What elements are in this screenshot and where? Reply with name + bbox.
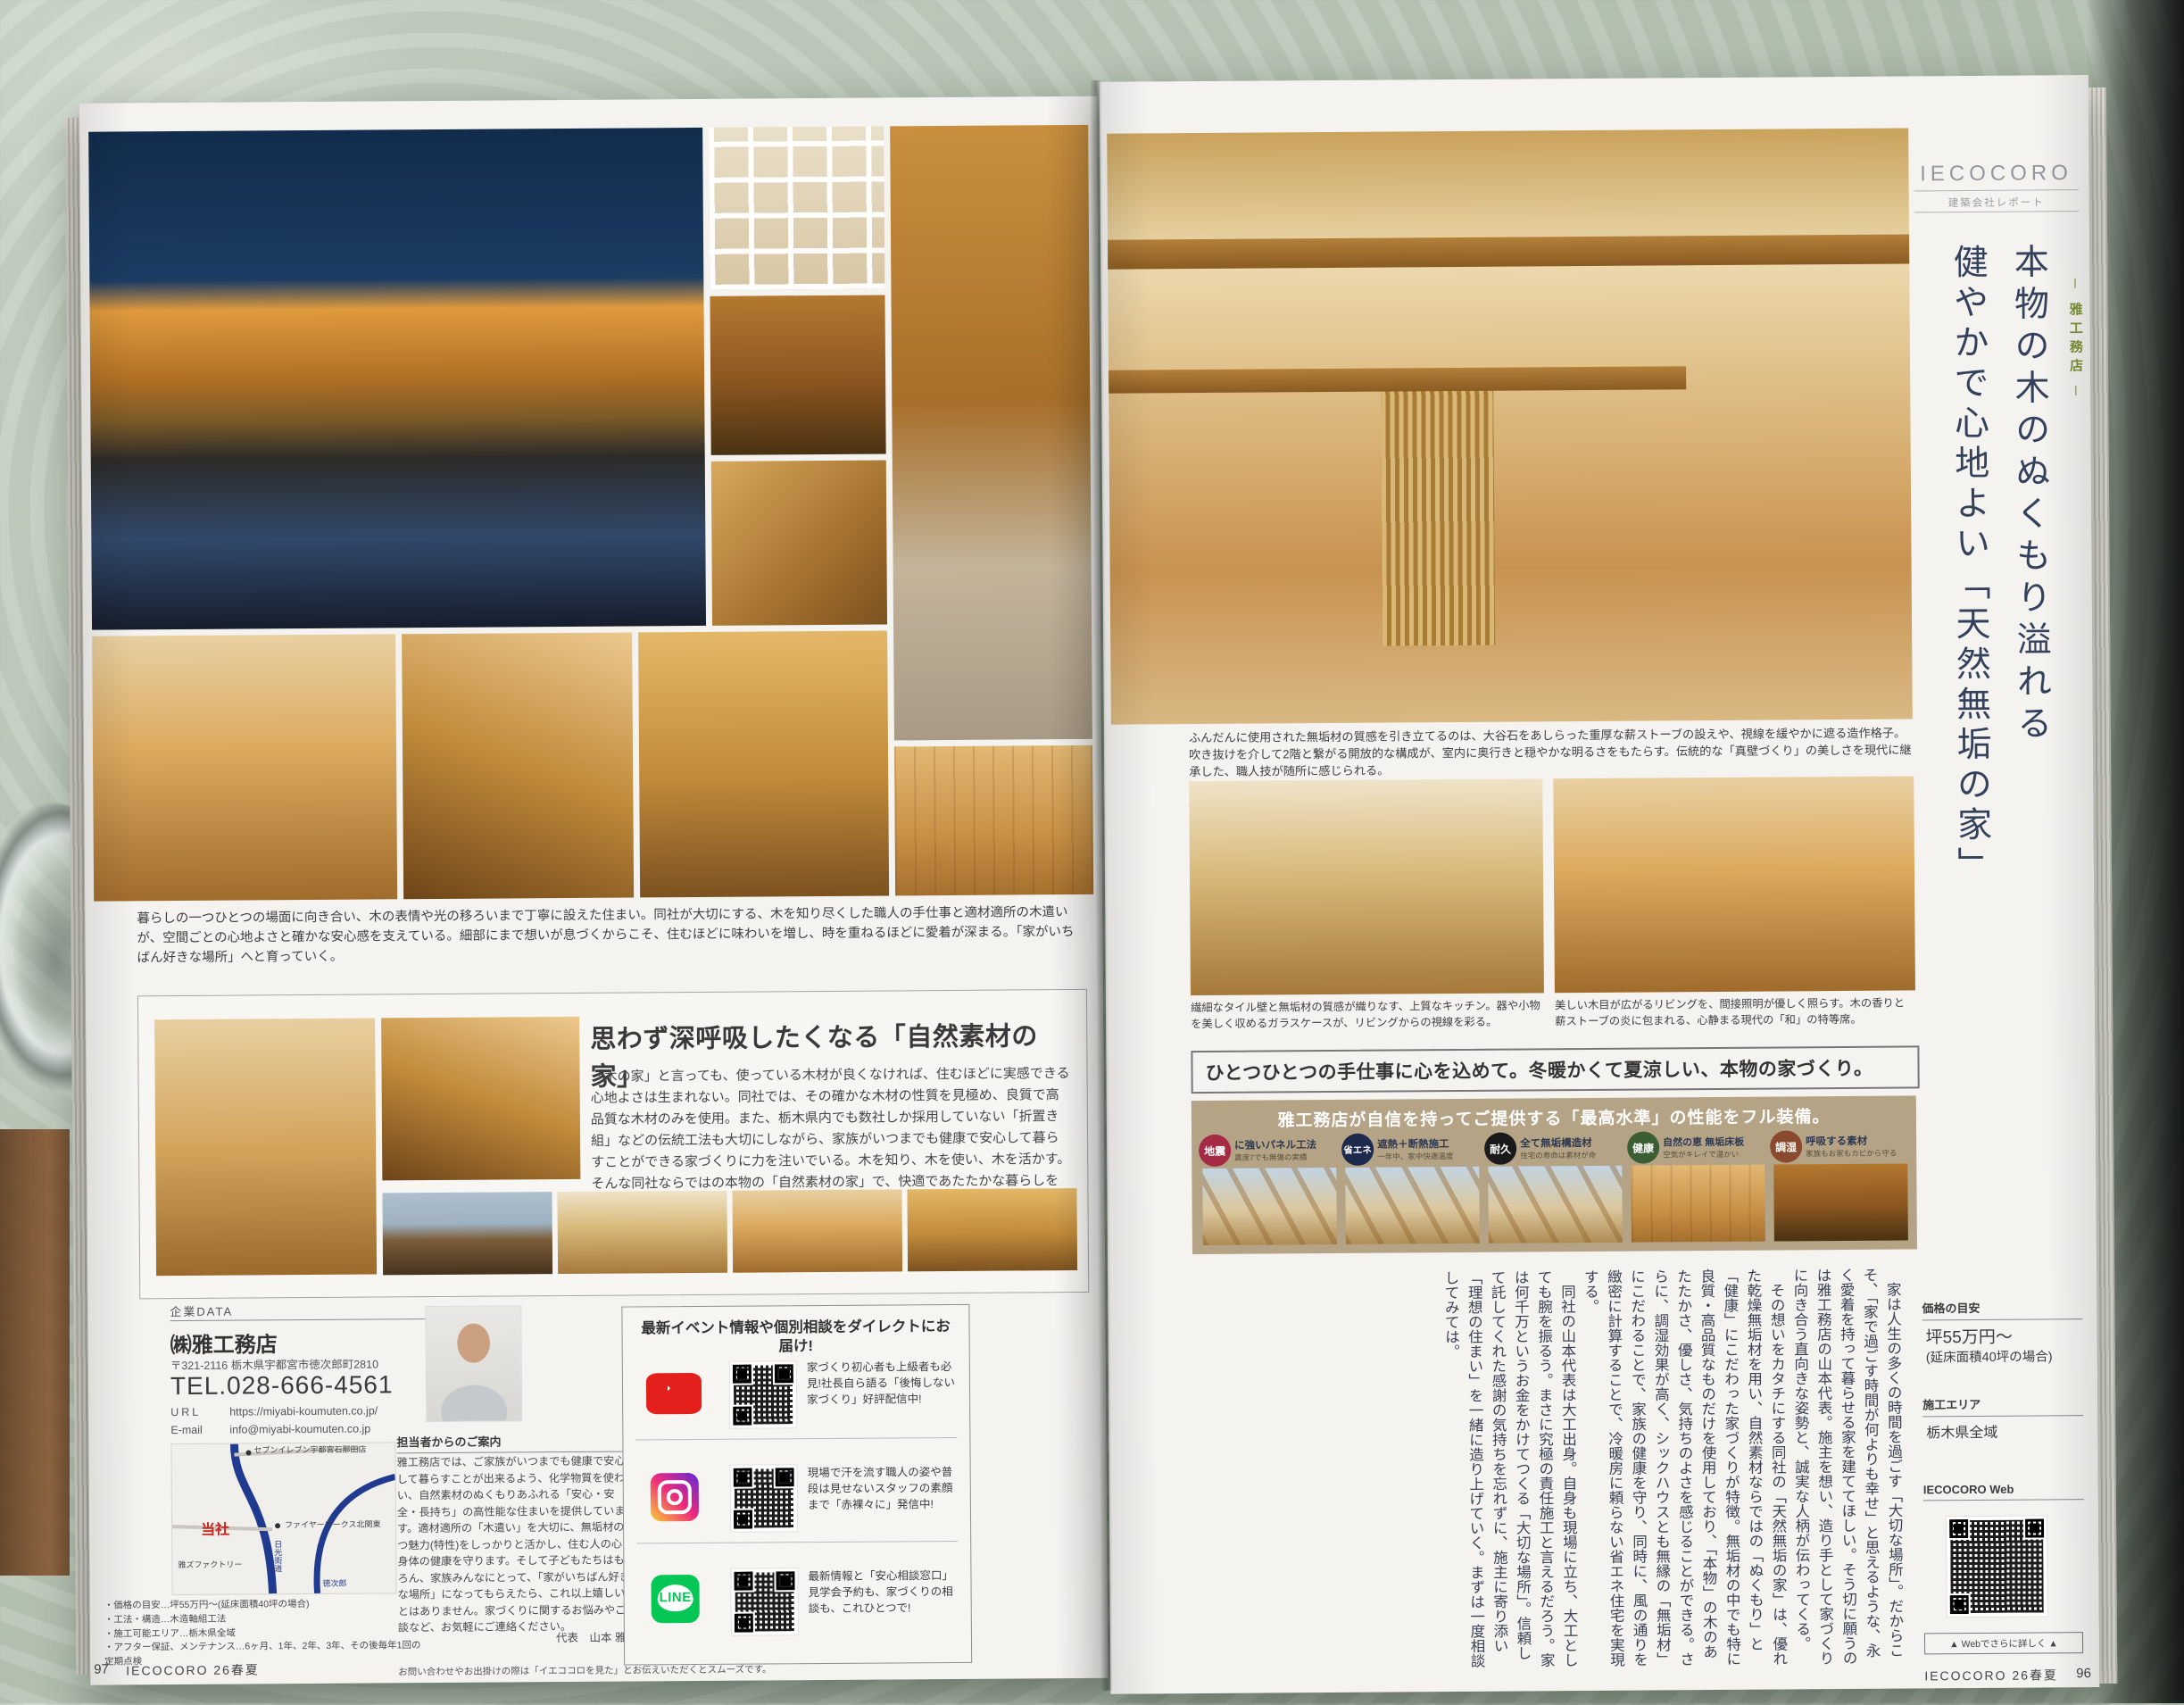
- page-number-right: 96: [2076, 1666, 2091, 1681]
- photo-grid-caption: 暮らしの一つひとつの場面に向き合い、木の表情や光の移ろいまで丁寧に設えた住まい。…: [137, 902, 1084, 969]
- sns-instagram-text: 現場で汗を流す職人の姿や普段は見せないスタッフの素顔まで「赤裸々に」発信中!: [808, 1464, 958, 1514]
- photo-interior-plants: [154, 1018, 377, 1276]
- spec-sub: 家族もお家もカビから守る: [1806, 1147, 1911, 1159]
- area-value: 栃木県全域: [1926, 1420, 1997, 1443]
- photo-breathing-material: [1773, 1163, 1908, 1241]
- photo-stairwell: [381, 1017, 580, 1181]
- badge-humidity: 調湿: [1770, 1130, 1802, 1162]
- photo-main-beam2: [1109, 366, 1686, 394]
- spec-title: 遮熱＋断熱施工: [1377, 1136, 1482, 1152]
- line-qr-code: [731, 1568, 798, 1635]
- map-label-road: 日光街道: [272, 1540, 284, 1572]
- price-value-2: (延床面積40坪の場合): [1926, 1346, 2053, 1366]
- article-body: 家は人生の多くの時間を過ごす「大切な場所」。だからこそ、「家で過ごす時間が何より…: [1143, 1268, 1906, 1676]
- spec-sub: 一年中、家中快適温度: [1377, 1151, 1482, 1162]
- photo-hallway: [710, 295, 885, 454]
- badge-health: 健康: [1627, 1131, 1659, 1163]
- magazine-name-left: IECOCORO 26春夏: [126, 1660, 260, 1679]
- spec-sub: 震度7でも無傷の実績: [1234, 1152, 1340, 1163]
- youtube-qr-code: [730, 1361, 797, 1428]
- price-value-1: 坪55万円〜: [1926, 1324, 2013, 1349]
- page-left: 暮らしの一つひとつの場面に向き合い、木の表情や光の移ろいまで丁寧に設えた住まい。…: [79, 96, 1108, 1685]
- spec-tile-earthquake: 地震 に強いパネル工法 震度7でも無傷の実績: [1202, 1137, 1337, 1247]
- map-label-fireworks: ファイヤーワークス北関東: [285, 1518, 392, 1530]
- map-label-self: 当社: [201, 1518, 229, 1539]
- photo-engawa: [907, 1188, 1077, 1271]
- photo-exterior-dusk: [88, 128, 706, 630]
- photo-stair-detail: [894, 745, 1093, 896]
- photo-corridor-lamp: [638, 630, 889, 897]
- brand-rule-bottom: [1914, 211, 2079, 212]
- line-logo-text: LINE: [658, 1584, 693, 1612]
- web-qr-code: [1947, 1516, 2047, 1617]
- staff-portrait: [425, 1305, 522, 1422]
- footer-note: お問い合わせやお出掛けの際は「イエココロを見た」とお伝えいただくとスムーズです。: [398, 1661, 969, 1678]
- photo-old-house: [382, 1192, 552, 1275]
- photo-insulation-work: [1345, 1167, 1480, 1244]
- company-tag: ─ 雅工務店 ─: [2065, 243, 2090, 1189]
- main-photo-caption: ふんだんに使用された無垢材の質感を引き立てるのは、大谷石をあしらった重厚な薪スト…: [1189, 724, 1914, 780]
- photo-kitchen: [1189, 778, 1544, 995]
- photo-stair-beams: [402, 632, 634, 899]
- map-label-factory: 雅ズファクトリー: [178, 1558, 258, 1570]
- sns-youtube-text: 家づくり初心者も上級者も必見!社長自ら語る「後悔しない家づくり」好評配信中!: [807, 1359, 957, 1409]
- spec-tile-health: 健康 自然の恵 無垢床板 空気がキレイで温かい: [1631, 1135, 1765, 1244]
- brand-rule-top: [1914, 189, 2079, 191]
- photo-living-dining: [92, 634, 397, 901]
- spec-sub: 空気がキレイで温かい: [1663, 1149, 1768, 1160]
- feature-heading-box: ひとつひとつの手仕事に心を込めて。冬暖かくて夏涼しい、本物の家づくり。: [1191, 1045, 1919, 1094]
- company-email[interactable]: info@miyabi-koumuten.co.jp: [229, 1423, 370, 1436]
- photo-living-stove: [1553, 776, 1915, 993]
- spec-title: 全て無垢構造材: [1520, 1135, 1625, 1151]
- badge-durability: 耐久: [1484, 1133, 1516, 1165]
- article-paragraph-1: 家は人生の多くの時間を過ごす「大切な場所」。だからこそ、「家で過ごす時間が何より…: [1788, 1268, 1906, 1672]
- photo-wood-detail: [711, 460, 887, 625]
- area-label: 施工エリア: [1922, 1394, 2083, 1417]
- photo-living: [732, 1189, 902, 1272]
- spec-title: 自然の恵 無垢床板: [1663, 1135, 1768, 1150]
- spec-tile-durability: 耐久 全て無垢構造材 住宅の寿命は素材が命: [1488, 1135, 1623, 1245]
- page-right: ふんだんに使用された無垢材の質感を引き立てるのは、大谷石をあしらった重厚な薪スト…: [1100, 75, 2100, 1694]
- badge-earthquake: 地震: [1199, 1135, 1231, 1167]
- spec-banner-title: 雅工務店が自信を持ってご提供する「最高水準」の性能をフル装備。: [1192, 1102, 1916, 1132]
- map-label-tokujiro: 徳次郎: [322, 1577, 346, 1589]
- web-note-box: ▲ Webでさらに詳しく ▲: [1924, 1632, 2083, 1654]
- article-paragraph-3: 同社の山本代表は大工出身。自身も現場に立ち、大工としても腕を振るう。まさに究極の…: [1439, 1269, 1582, 1674]
- web-note-text: ▲ Webでさらに詳しく ▲: [1949, 1636, 2058, 1651]
- spec-sub: 住宅の寿命は素材が命: [1520, 1150, 1625, 1161]
- magazine-spread: 暮らしの一つひとつの場面に向き合い、木の表情や光の移ろいまで丁寧に設えた住まい。…: [44, 64, 2108, 1705]
- photo-main-beam: [1108, 235, 1909, 270]
- photo-dining: [557, 1191, 727, 1274]
- sns-divider: [636, 1541, 958, 1544]
- company-email-label: E-mail: [170, 1424, 203, 1436]
- brand-sub: 建築会社レポート: [1911, 195, 2082, 210]
- headline-line-1: 本物の木のぬくもり溢れる: [2003, 243, 2059, 1189]
- spec-tile-energy: 省エネ 遮熱＋断熱施工 一年中、家中快適温度: [1345, 1136, 1480, 1246]
- brand-logo: IECOCORO: [1910, 161, 2081, 187]
- sns-divider: [635, 1437, 957, 1441]
- spec-banner: 雅工務店が自信を持ってご提供する「最高水準」の性能をフル装備。 地震 に強いパネ…: [1192, 1095, 1917, 1254]
- photo-solid-flooring: [1631, 1165, 1765, 1243]
- instagram-icon: [651, 1473, 699, 1521]
- sns-box: 最新イベント情報や個別相談をダイレクトにお届け! 家づくり初心者も上級者も必見!…: [621, 1304, 972, 1666]
- page-number-left: 97: [94, 1662, 109, 1677]
- instagram-qr-code: [731, 1465, 798, 1532]
- headline-block: ─ 雅工務店 ─ 本物の木のぬくもり溢れる 健やかで心地よい「天然無垢の家」: [1900, 243, 2090, 1190]
- spec-title: 呼吸する素材: [1806, 1133, 1911, 1148]
- spec-tile-humidity: 調湿 呼吸する素材 家族もお家もカビから守る: [1773, 1134, 1908, 1243]
- living-caption: 美しい木目が広がるリビングを、間接照明が優しく照らす。木の香りと薪ストーブの炎に…: [1555, 995, 1915, 1029]
- photo-entrance-bench: [890, 125, 1092, 741]
- company-url-label: URL: [170, 1406, 201, 1418]
- natural-material-box: 思わず深呼吸したくなる「自然素材の家」 「木の家」と言っても、使っている木材が良…: [137, 989, 1089, 1299]
- company-url[interactable]: https://miyabi-koumuten.co.jp/: [229, 1404, 378, 1418]
- sns-line-text: 最新情報と「安心相談窓口」見学会予約も、家づくりの相談も、これひとつで!: [808, 1568, 958, 1618]
- feature-heading-text: ひとつひとつの手仕事に心を込めて。冬暖かくて夏涼しい、本物の家づくり。: [1192, 1054, 1873, 1085]
- article-paragraph-2: その想いをカタチにする同社の「天然無垢の家」は、優れた乾燥無垢材を用い、自然素材…: [1578, 1268, 1790, 1673]
- web-label: IECOCORO Web: [1923, 1482, 2084, 1501]
- sns-box-title: 最新イベント情報や個別相談をダイレクトにお届け!: [635, 1318, 956, 1358]
- magazine-name-right: IECOCORO 26春夏: [1924, 1666, 2058, 1684]
- line-icon: LINE: [651, 1575, 699, 1623]
- price-label: 価格の目安: [1922, 1298, 2082, 1320]
- photo-panel-construction: [1202, 1168, 1337, 1245]
- staff-signature: 代表 山本 雅之: [398, 1627, 637, 1646]
- map-label-seveneleven: セブンイレブン宇都宮石那田店: [253, 1444, 387, 1455]
- photo-timber-frame: [1488, 1166, 1623, 1243]
- access-map: セブンイレブン宇都宮石那田店 当社 ファイヤーワークス北関東 雅ズファクトリー …: [170, 1442, 396, 1595]
- headline-line-2: 健やかで心地よい「天然無垢の家」: [1942, 244, 1998, 1190]
- photo-shoji-window: [709, 126, 884, 289]
- youtube-icon: [646, 1373, 702, 1414]
- spec-title: に強いパネル工法: [1234, 1137, 1340, 1152]
- photo-main-interior: [1107, 128, 1913, 724]
- company-notes: ・価格の目安…坪55万円〜(延床面積40坪の場合) ・工法・構造…木造軸組工法 …: [104, 1597, 427, 1669]
- staff-message-body: 雅工務店では、ご家族がいつまでも健康で安心して暮らすことが出来るよう、化学物質を…: [397, 1452, 637, 1636]
- photo-main-slats: [1381, 379, 1495, 646]
- company-data-label: 企業DATA: [170, 1301, 464, 1319]
- photo-grid: [88, 125, 1093, 902]
- kitchen-caption: 繊細なタイル壁と無垢材の質感が織りなす、上質なキッチン。器や小物を美しく収めるガ…: [1191, 998, 1540, 1032]
- badge-energy: 省エネ: [1341, 1134, 1374, 1166]
- staff-message-title: 担当者からのご案内: [396, 1431, 635, 1453]
